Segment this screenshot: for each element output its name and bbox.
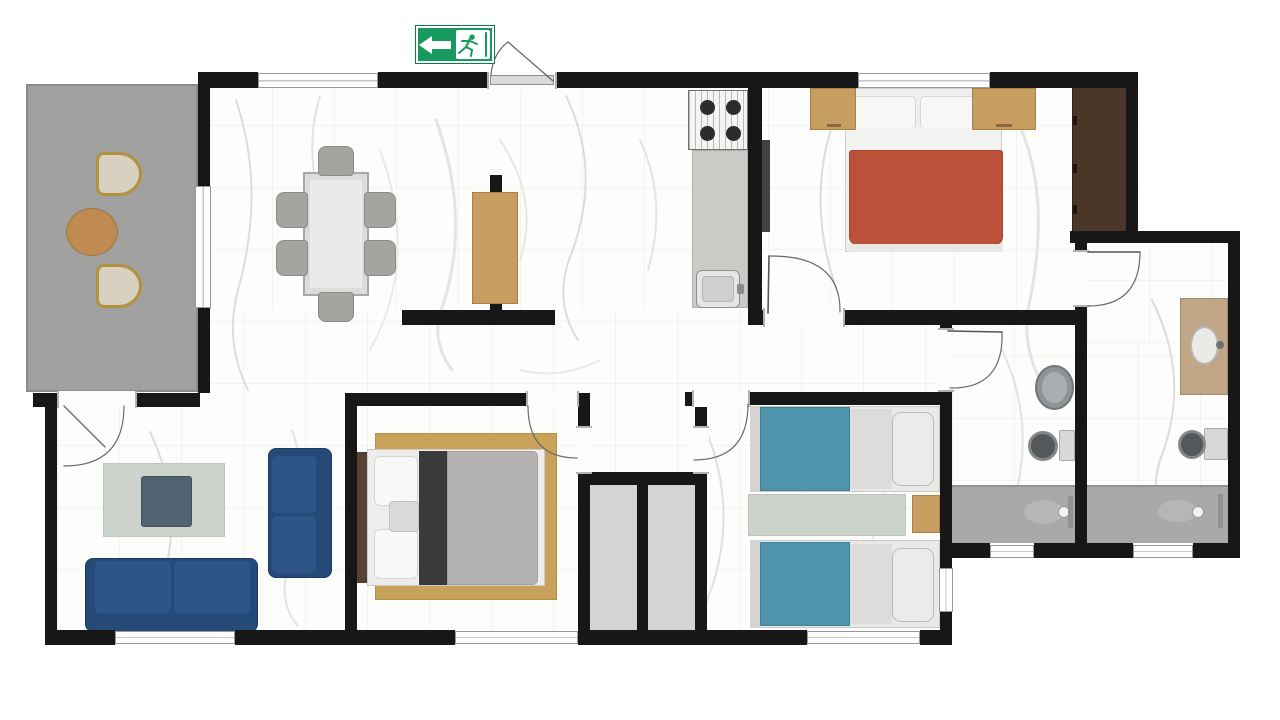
loveseat-cushion	[272, 516, 316, 573]
kitchen-faucet	[737, 284, 744, 294]
master-nightstand-handle	[827, 124, 841, 127]
wall	[1075, 305, 1087, 545]
window	[455, 631, 578, 644]
door-opening-master	[763, 308, 845, 327]
kitchen-sink-basin	[702, 276, 734, 302]
exit-arrow-left-icon	[432, 41, 451, 49]
exit-runner-box	[456, 30, 490, 59]
dining-chair-right	[364, 192, 396, 228]
bedroom2-pillow	[374, 456, 418, 506]
stove-burner	[726, 100, 741, 115]
ensuite-toilet-bowl	[1178, 430, 1206, 459]
wall	[135, 393, 200, 407]
door-opening-twin	[692, 390, 750, 407]
window	[258, 73, 378, 88]
dining-chair-left	[276, 192, 308, 228]
stove-burner	[700, 100, 715, 115]
twin-bed-bottom-cover	[850, 544, 892, 624]
wall	[1193, 543, 1240, 558]
window	[807, 631, 920, 644]
dining-chair-top	[318, 146, 354, 176]
door-opening-bedroom2	[526, 391, 579, 407]
wall	[33, 393, 60, 407]
balcony-round-table	[66, 208, 118, 256]
ensuite-faucet	[1216, 341, 1224, 349]
bedroom2-pillow-small	[389, 501, 419, 532]
sofa-cushion	[174, 561, 250, 613]
wall	[578, 630, 807, 645]
sideboard	[472, 192, 518, 304]
stove-burner	[726, 126, 741, 141]
master-wall-tv	[762, 140, 770, 232]
wall	[748, 88, 762, 312]
wall	[843, 310, 1075, 325]
window	[939, 568, 953, 612]
closet-bedroom2-floor	[590, 485, 637, 632]
wall	[557, 72, 858, 88]
twin-bed-top-pillow	[892, 412, 934, 486]
sofa-cushion	[95, 561, 171, 613]
door-opening-balcony	[57, 391, 137, 408]
window	[990, 545, 1034, 558]
wall	[637, 472, 648, 632]
master-nightstand-handle	[996, 124, 1012, 127]
midbath-toilet-tank	[1059, 430, 1075, 461]
closet-opening	[693, 426, 709, 474]
twin-bed-bottom-sheet	[750, 540, 760, 628]
loveseat-cushion	[272, 456, 316, 513]
midbath-toilet-bowl	[1028, 431, 1058, 461]
balcony-chair-top	[96, 152, 142, 196]
wall	[920, 630, 952, 645]
wall	[750, 392, 952, 405]
wardrobe-handle	[1073, 116, 1077, 125]
twin-bed-bottom-blanket	[760, 542, 850, 626]
kitchen-stove	[688, 90, 748, 150]
dining-table-top	[310, 180, 362, 288]
wall	[378, 72, 488, 88]
wall	[198, 72, 258, 88]
stove-burner	[700, 126, 715, 141]
closet-twin-floor	[648, 485, 695, 632]
bedroom2-duvet	[447, 451, 538, 585]
twin-bed-top-cover	[850, 409, 892, 489]
closet-opening	[576, 426, 592, 474]
window	[195, 186, 211, 308]
master-pillow-left	[854, 96, 916, 129]
wall	[402, 310, 555, 325]
entrance-door-leaf-bar	[490, 75, 554, 85]
wall	[1228, 243, 1240, 558]
twin-nightstand	[912, 495, 940, 533]
balcony-chair-bottom	[96, 264, 142, 308]
door-opening-midbath	[938, 328, 954, 392]
twin-bed-top-sheet	[750, 406, 760, 492]
wall	[45, 400, 57, 645]
ensuite-basin	[1190, 326, 1219, 365]
wall	[345, 393, 528, 406]
dining-chair-bottom	[318, 292, 354, 322]
wall	[345, 393, 357, 630]
wall	[235, 630, 455, 645]
shower-floor-ensuite	[1087, 485, 1228, 543]
exit-arrow-head-icon	[419, 36, 432, 54]
window	[115, 631, 235, 644]
bedroom2-bed-runner	[419, 451, 447, 585]
ensuite-shower-head	[1192, 506, 1204, 518]
master-duvet-red	[849, 150, 1003, 245]
dining-chair-right	[364, 240, 396, 276]
wall	[1070, 231, 1240, 243]
wall	[952, 543, 990, 558]
wall	[1126, 88, 1138, 243]
wardrobe-handle	[1073, 164, 1077, 173]
master-bed-foot	[849, 244, 1003, 252]
midbath-sink-basin	[1042, 372, 1067, 403]
twin-bed-bottom-pillow	[892, 548, 934, 622]
rug-twin-bedroom	[748, 494, 906, 536]
coffee-table	[141, 476, 192, 527]
apartment-floor-plan	[0, 0, 1280, 720]
window	[858, 73, 990, 88]
wardrobe-handle	[1073, 205, 1077, 214]
twin-bed-top-blanket	[760, 407, 850, 491]
wall	[1034, 543, 1133, 558]
midbath-shower-bar	[1068, 496, 1073, 528]
ensuite-shower-bar	[1218, 494, 1223, 528]
dining-chair-left	[276, 240, 308, 276]
master-wardrobe	[1072, 86, 1130, 232]
wall	[990, 72, 1138, 88]
door-opening-ensuite	[1073, 250, 1089, 307]
ensuite-toilet-tank	[1204, 428, 1228, 460]
bedroom2-pillow	[374, 529, 418, 579]
window	[1133, 545, 1193, 558]
